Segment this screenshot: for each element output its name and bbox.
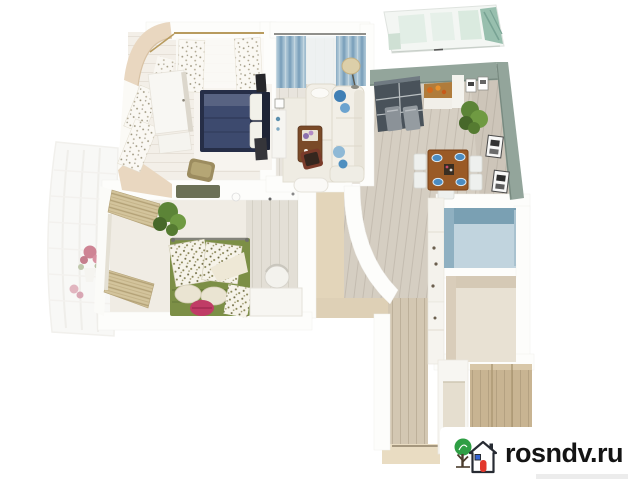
hall-cabinets: [428, 198, 444, 364]
watermark-logo: rosndv.ru: [440, 427, 632, 480]
wall-right-outer: [514, 206, 530, 368]
dining-chair: [470, 174, 482, 190]
living-room: [272, 34, 366, 192]
bed-pillow: [250, 94, 264, 120]
bathroom: [444, 208, 516, 268]
house-window: [475, 454, 481, 460]
blue-plate: [433, 178, 443, 185]
ceiling-vent: [176, 185, 220, 198]
dining-chair: [470, 156, 482, 172]
floorplan-image: rosndv.ru: [0, 0, 632, 480]
sheer-curtain: [304, 36, 338, 84]
logo-underbar: [536, 474, 628, 479]
watermark-text: rosndv.ru: [505, 440, 623, 467]
glazed-balcony-top: [384, 5, 504, 53]
dresser: [254, 138, 268, 161]
blue-pillow: [340, 103, 350, 113]
tv: [255, 74, 266, 93]
desk: [250, 288, 302, 316]
bathroom-wall-top: [444, 208, 516, 224]
fridge-column: [452, 75, 464, 108]
logo-icons: [453, 434, 497, 474]
house-door: [480, 460, 487, 472]
floral-blanket-corner: [223, 284, 252, 318]
blue-pillow: [334, 90, 346, 102]
blue-plate: [432, 154, 442, 161]
blue-plate: [456, 178, 466, 185]
wall-corridor-left: [374, 314, 390, 450]
storage-room: [446, 276, 516, 362]
house-icon: [470, 442, 496, 472]
table-centerpiece: [444, 164, 454, 175]
blue-pillow: [339, 160, 348, 169]
green-bed: [169, 238, 262, 318]
counter-with-fruit: [424, 82, 452, 109]
wall-frame: [275, 99, 284, 108]
blue-curtain-left: [276, 36, 306, 88]
ceiling-lamp: [232, 193, 240, 201]
blue-pillow: [333, 146, 345, 158]
blue-plate: [455, 153, 465, 160]
wall-living-top: [270, 22, 370, 38]
cream-pillow: [175, 285, 201, 303]
storage-wall-top: [446, 276, 516, 288]
dining-chair: [414, 154, 426, 170]
demilune-table: [294, 178, 328, 192]
wardrobe-niche: [443, 382, 465, 430]
floorplan-rendering: [0, 0, 632, 480]
storage-wall-left: [446, 276, 456, 362]
dining-chair: [414, 172, 426, 188]
white-pillow: [311, 88, 329, 98]
bathroom-wall-left: [444, 208, 454, 268]
